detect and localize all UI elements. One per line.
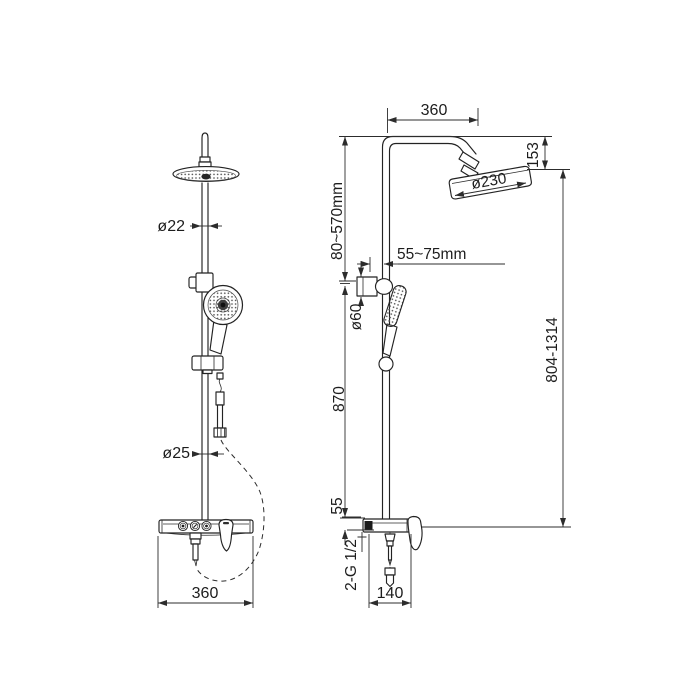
hand-shower-hub [221,303,226,308]
deck-button-3 [202,521,211,530]
dim-label-deck-depth: 140 [377,585,404,602]
dim-label-arm-width: 360 [421,102,448,119]
hose-ball-joint [379,357,393,371]
rain-head-hub [201,174,210,180]
dim-label-thread: 2-G 1/2 [343,539,360,591]
paper-background [0,0,700,700]
dim-label-pipe-lower: ø25 [162,445,190,462]
shower-system-dimension-drawing: ø22 ø25 360 ø [0,0,700,700]
deck-buttons [178,521,211,530]
dim-label-overall-height: 804-1314 [544,317,561,383]
deck-button-1 [178,521,187,530]
dim-label-pipe-upper: ø22 [157,218,185,235]
dim-label-lower-column: 870 [331,386,348,412]
wall-connection-block [365,521,373,531]
dim-label-wall-distance: 55~75mm [397,246,466,263]
dim-label-holder-range: 80~570mm [329,182,346,260]
dim-label-bracket-dia: ø60 [348,303,365,330]
wall-bracket-side [357,277,393,296]
dim-label-front-width: 360 [192,585,219,602]
dim-label-deck-thickness: 55 [329,497,346,514]
deck-button-2 [190,521,199,530]
dim-label-head-height: 153 [525,142,542,168]
rain-shower-head [173,167,239,182]
technical-drawing-canvas: ø22 ø25 360 ø [0,0,700,700]
